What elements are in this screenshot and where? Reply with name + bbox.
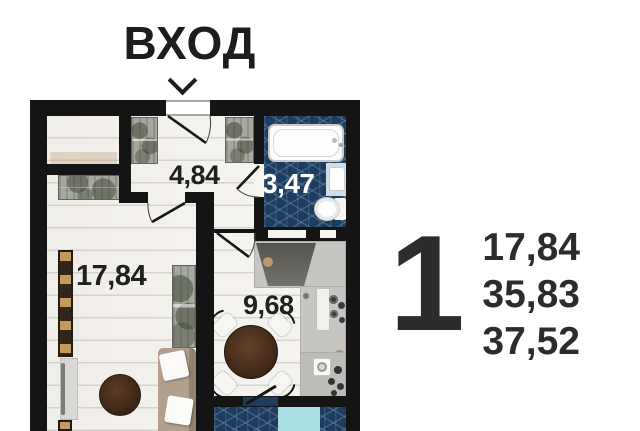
chevron-down-icon — [168, 66, 198, 96]
room-area-label-living-room: 17,84 — [76, 260, 146, 293]
room-area-label-hallway: 4,84 — [169, 160, 220, 191]
tv-stand — [60, 358, 78, 420]
wall — [30, 100, 47, 431]
area-values: 17,84 35,83 37,52 — [468, 224, 580, 365]
sink — [329, 167, 345, 191]
toilet-bowl — [314, 197, 340, 221]
kitchen-door-lintel — [214, 229, 256, 233]
entrance-label: ВХОД — [95, 16, 285, 70]
rooms-count: 1 — [388, 215, 466, 351]
wall — [346, 100, 360, 431]
alcove-wardrobe — [58, 175, 122, 200]
sofa-pillow — [158, 350, 189, 382]
alcove-shelf — [50, 152, 117, 164]
living-area-value: 17,84 — [468, 224, 580, 271]
bathtub — [268, 124, 344, 162]
counter-item — [328, 378, 335, 385]
wall — [196, 192, 214, 431]
hallway-wardrobe-left — [131, 117, 158, 164]
wall — [47, 164, 122, 175]
coffee-table — [99, 374, 141, 416]
kitchen-bowl — [263, 257, 273, 267]
room-area-label-kitchen: 9,68 — [243, 290, 294, 321]
wall — [119, 116, 131, 203]
wall-vent — [320, 230, 336, 238]
washing-machine-door — [317, 362, 327, 372]
sofa — [158, 348, 196, 431]
total-area-value: 37,52 — [468, 318, 580, 365]
wall — [119, 192, 148, 203]
balcony-window-sill — [278, 406, 320, 431]
bookshelf — [58, 250, 73, 357]
bathtub-faucet — [339, 143, 343, 147]
fridge — [316, 288, 330, 331]
counter-item — [334, 366, 342, 374]
washing-machine — [313, 358, 331, 376]
bookshelf-lower — [58, 420, 72, 431]
sofa-pillow — [164, 395, 194, 426]
bathtub-inner — [273, 129, 339, 157]
cooktop-burner — [339, 317, 345, 323]
tv-screen — [61, 363, 65, 415]
cooktop-burner — [338, 302, 345, 309]
hallway-wardrobe-right — [225, 117, 254, 163]
balcony-wall — [214, 396, 346, 407]
cooktop-burner — [329, 295, 338, 304]
living-room-wardrobe — [172, 265, 196, 348]
room-area-label-bathroom: 3,47 — [262, 168, 315, 200]
balcony-door-opening — [243, 397, 278, 406]
wall-vent — [268, 230, 306, 238]
counter-item — [337, 383, 344, 390]
counter-item — [303, 293, 309, 299]
bathtub-drain — [332, 138, 337, 143]
floor-plan-image: ВХОД — [0, 0, 640, 431]
dining-table — [224, 325, 278, 379]
entrance-door-opening — [166, 100, 210, 116]
apartment-area-value: 35,83 — [468, 271, 580, 318]
cooktop-burner — [330, 310, 338, 318]
